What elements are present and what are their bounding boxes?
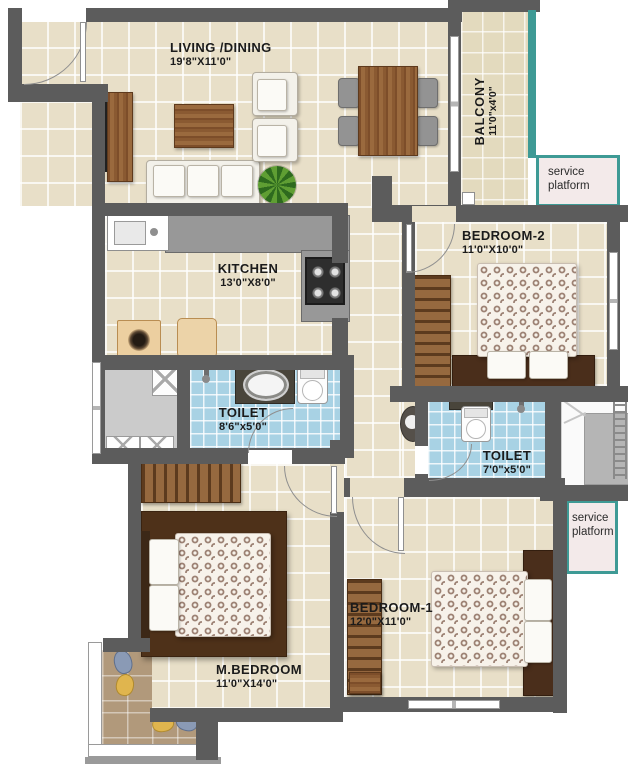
toilet2-name: TOILET (483, 448, 531, 463)
bedroom1-window (408, 700, 500, 709)
washbasin-icon (243, 369, 289, 401)
wall-toilet1-right (340, 355, 354, 458)
shower-head-icon (202, 375, 210, 383)
toilet2-door-opening (415, 446, 428, 474)
bedroom1-label: BEDROOM-1 12'0"X11'0" (350, 600, 433, 629)
kitchen-counter (165, 215, 350, 253)
lift-lobby-window (92, 362, 101, 454)
bedroom1-dims: 12'0"X11'0" (350, 616, 433, 629)
plant-icon (258, 166, 296, 204)
stove-icon (305, 257, 345, 305)
pillow-3 (524, 579, 552, 621)
wall-balcony-step (103, 638, 150, 652)
pillow (487, 351, 526, 379)
pillow-2 (529, 351, 568, 379)
balcony-dims: 11'0"x4'0" (487, 46, 499, 176)
mbedroom-name: M.BEDROOM (216, 662, 302, 677)
bedroom1-door-opening (350, 478, 404, 497)
pillow-4 (524, 621, 552, 663)
wall-balcony-top (448, 0, 540, 12)
kitchen-dims: 13'0"X8'0" (198, 277, 298, 290)
bedroom1-bench (349, 672, 381, 694)
faucet-icon (150, 228, 158, 236)
mbedroom-dims: 11'0"X14'0" (216, 678, 302, 691)
pivot-box (462, 192, 475, 205)
balcony-name: BALCONY (473, 46, 487, 176)
armchair (252, 72, 298, 116)
entrance-opening (22, 8, 86, 22)
toilet-seat-icon (297, 367, 328, 404)
shower-head-icon-2 (517, 405, 525, 413)
armchair-2 (252, 118, 298, 162)
wall-toilet1-bottom (128, 448, 345, 464)
floor-plan: LIVING /DINING 19'8"X11'0" BALCONY 11'0"… (0, 0, 628, 768)
wall-balcony-corner (196, 714, 218, 760)
bedroom2-name: BEDROOM-2 (462, 228, 545, 243)
toilet-seat-icon-2 (461, 406, 491, 442)
washing-machine-icon (117, 320, 161, 358)
mbedroom-wardrobe (141, 461, 241, 503)
bedroom2-wardrobe (412, 275, 451, 393)
mbedroom-bed (175, 533, 271, 637)
passage-floor (345, 206, 405, 482)
bedroom2-door-opening (412, 206, 456, 222)
sofa-three-seat (146, 160, 260, 208)
dining-chair-4 (416, 116, 438, 146)
balcony-label: BALCONY 11'0"x4'0" (473, 46, 515, 176)
balcony-teal-trim (528, 10, 536, 158)
wall-toilet1-top (92, 355, 348, 370)
bedroom2-door-leaf (406, 224, 412, 272)
bedroom1-name: BEDROOM-1 (350, 600, 433, 615)
toilet2-label: TOILET 7'0"x5'0" (466, 448, 548, 477)
dining-chair-3 (416, 78, 438, 108)
dining-chair (338, 78, 360, 108)
toilet2-dims: 7'0"x5'0" (466, 464, 548, 477)
wall-toilet2-left-a (415, 398, 428, 446)
bedroom2-bed (477, 263, 577, 357)
toilet1-dims: 8'6"x5'0" (202, 421, 284, 434)
dining-table (358, 66, 418, 156)
bedroom1-door-leaf (398, 497, 404, 551)
bedroom2-window (609, 252, 618, 350)
fridge (177, 318, 217, 358)
wall-stub (372, 176, 392, 222)
service-platform-top-label: service platform (548, 166, 610, 193)
wall-bedroom1-right (553, 497, 567, 713)
entrance-door-leaf (80, 22, 86, 82)
dining-chair-2 (338, 116, 360, 146)
wall-left-upper (8, 8, 22, 92)
wall-mbedroom-left (128, 452, 141, 650)
pillow-6 (149, 585, 179, 631)
mbedroom-label: M.BEDROOM 11'0"X14'0" (216, 662, 302, 691)
pillow-5 (149, 539, 179, 585)
tv-unit (107, 92, 133, 182)
bedroom2-label: BEDROOM-2 11'0"X10'0" (462, 228, 545, 257)
mbedroom-door-leaf (331, 466, 337, 514)
kitchen-sink (107, 215, 169, 251)
bedroom2-dims: 11'0"X10'0" (462, 244, 545, 257)
wall-living-kitchen (92, 203, 348, 216)
balcony-railing-left (88, 642, 102, 752)
kitchen-name: KITCHEN (218, 261, 279, 276)
wall-kitchen-right-b (332, 318, 348, 370)
coffee-table (174, 104, 234, 148)
balcony-sliding-window (450, 36, 459, 172)
living-room-dims: 19'8"X11'0" (170, 56, 272, 69)
wall-lift-divider (177, 358, 190, 458)
toilet1-name: TOILET (219, 405, 267, 420)
wall-mbedroom-bottom (150, 708, 343, 722)
bedroom1-bed (431, 571, 528, 667)
service-platform-mid-label: service platform (572, 512, 616, 539)
kitchen-label: KITCHEN 13'0"X8'0" (198, 261, 298, 290)
living-room-name: LIVING /DINING (170, 40, 272, 55)
living-room-label: LIVING /DINING 19'8"X11'0" (170, 40, 272, 69)
ladder-icon (613, 397, 627, 479)
toilet1-label: TOILET 8'6"x5'0" (202, 405, 284, 434)
